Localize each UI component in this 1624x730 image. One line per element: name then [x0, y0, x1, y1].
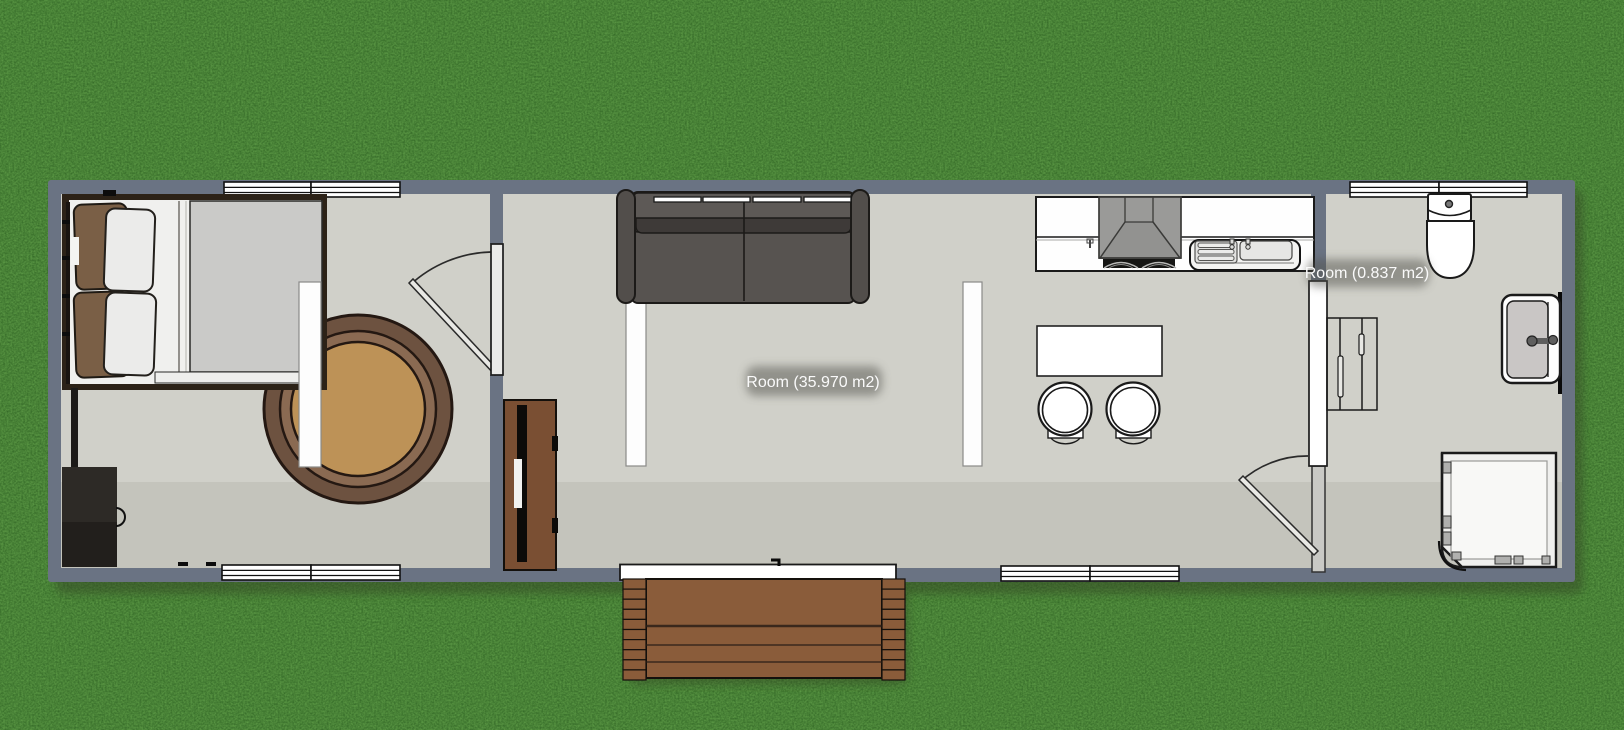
svg-text:Room (35.970 m2): Room (35.970 m2): [746, 374, 879, 391]
svg-text:Room (0.837 m2): Room (0.837 m2): [1305, 265, 1430, 282]
